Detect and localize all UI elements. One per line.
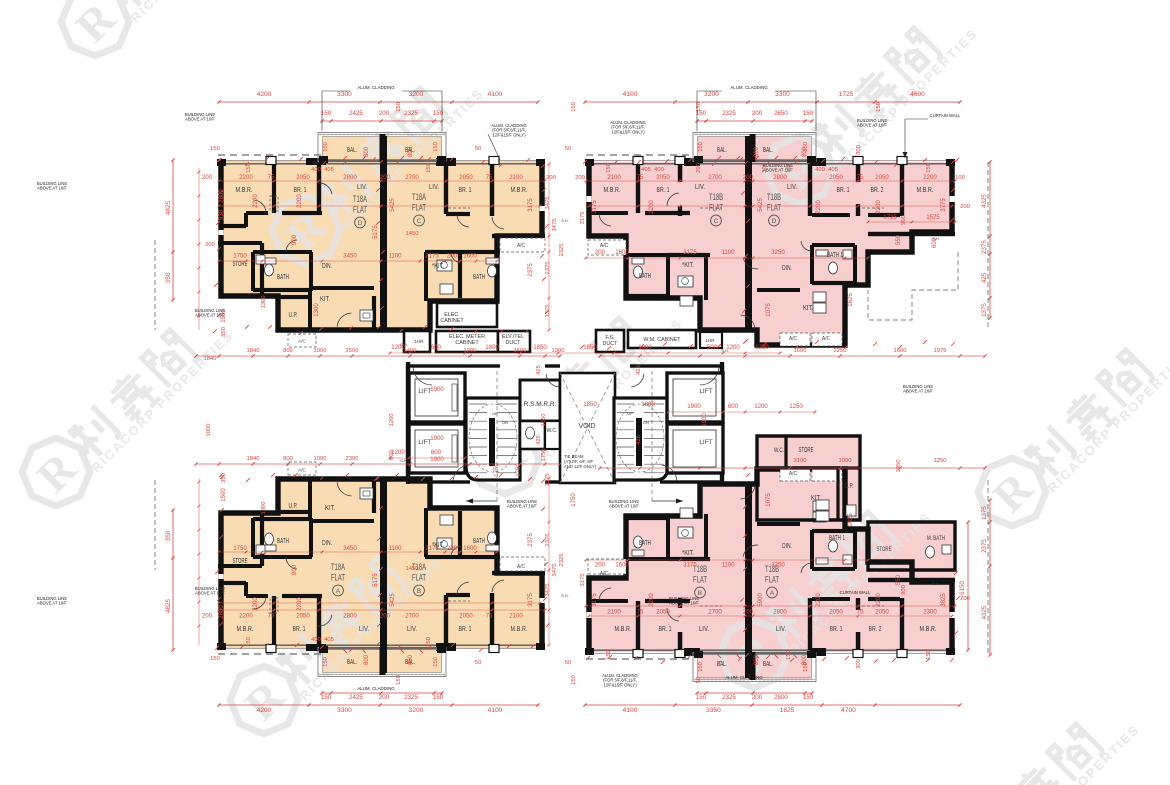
svg-text:150: 150 <box>396 675 402 685</box>
svg-text:1000: 1000 <box>206 424 212 437</box>
svg-text:1500: 1500 <box>221 488 227 502</box>
svg-text:2175: 2175 <box>425 253 439 260</box>
svg-text:800: 800 <box>364 146 370 157</box>
svg-text:150: 150 <box>786 650 792 660</box>
svg-text:5425: 5425 <box>390 593 396 607</box>
svg-text:1100: 1100 <box>721 562 735 569</box>
svg-text:1450: 1450 <box>406 566 419 572</box>
svg-text:1200: 1200 <box>726 344 740 351</box>
svg-text:BATH: BATH <box>639 540 651 547</box>
svg-text:1600: 1600 <box>615 562 629 569</box>
svg-text:BATH 1: BATH 1 <box>829 535 845 542</box>
svg-text:1840: 1840 <box>247 456 260 462</box>
svg-text:600: 600 <box>431 344 442 351</box>
svg-text:50: 50 <box>475 146 481 152</box>
svg-text:550: 550 <box>896 234 902 245</box>
svg-text:1100: 1100 <box>721 249 735 256</box>
svg-text:FLAT: FLAT <box>709 203 723 213</box>
svg-text:1075: 1075 <box>766 303 772 317</box>
svg-text:2200: 2200 <box>239 174 253 181</box>
svg-text:2800: 2800 <box>773 174 787 181</box>
svg-text:1600: 1600 <box>615 249 629 256</box>
svg-text:2100: 2100 <box>509 174 523 181</box>
svg-text:3175: 3175 <box>683 562 697 569</box>
svg-text:150: 150 <box>323 142 329 152</box>
svg-text:600: 600 <box>389 450 395 460</box>
svg-text:3250: 3250 <box>771 562 785 569</box>
svg-text:STORE: STORE <box>233 558 248 565</box>
svg-text:400: 400 <box>311 167 321 173</box>
svg-text:T18A: T18A <box>412 192 427 202</box>
svg-text:200: 200 <box>202 613 213 620</box>
svg-text:A/C: A/C <box>822 336 831 342</box>
svg-text:FLAT: FLAT <box>767 203 781 213</box>
svg-text:ABOVE AT 16/F: ABOVE AT 16/F <box>507 504 537 509</box>
svg-text:2325: 2325 <box>559 244 565 257</box>
svg-text:150: 150 <box>926 163 932 173</box>
svg-text:4200: 4200 <box>257 91 272 98</box>
svg-text:800: 800 <box>283 456 293 462</box>
svg-text:BAL.: BAL. <box>717 661 727 668</box>
svg-text:4825: 4825 <box>165 200 172 215</box>
svg-text:1840: 1840 <box>204 356 217 362</box>
svg-text:LIV.: LIV. <box>359 624 369 633</box>
svg-text:150: 150 <box>803 662 809 672</box>
svg-text:1250: 1250 <box>789 403 803 410</box>
svg-text:1250: 1250 <box>934 458 947 464</box>
svg-text:BR. 1: BR. 1 <box>830 626 843 633</box>
svg-text:1900: 1900 <box>552 348 565 354</box>
svg-text:2375: 2375 <box>528 263 534 277</box>
svg-text:12/F&15/F ONLY): 12/F&15/F ONLY) <box>492 132 526 137</box>
svg-text:5175: 5175 <box>373 225 379 239</box>
svg-text:2325: 2325 <box>722 694 736 701</box>
svg-text:BR. 2: BR. 2 <box>869 626 882 633</box>
svg-text:75: 75 <box>637 609 644 616</box>
svg-text:405: 405 <box>641 167 651 173</box>
svg-text:DIN.: DIN. <box>322 538 332 547</box>
svg-text:LIV.: LIV. <box>699 624 709 633</box>
svg-text:1300: 1300 <box>261 296 267 309</box>
svg-text:150: 150 <box>803 142 809 152</box>
svg-text:5175: 5175 <box>373 573 379 587</box>
svg-text:930: 930 <box>219 209 225 220</box>
svg-text:400: 400 <box>815 167 825 173</box>
svg-text:3825: 3825 <box>941 593 947 607</box>
svg-text:3200: 3200 <box>409 91 424 98</box>
svg-text:U.P.: U.P. <box>289 312 298 319</box>
svg-text:A/C: A/C <box>517 564 526 570</box>
svg-text:150: 150 <box>396 102 402 112</box>
svg-text:3475: 3475 <box>552 564 558 577</box>
svg-text:A/C: A/C <box>298 339 306 344</box>
svg-text:2800: 2800 <box>773 609 787 616</box>
svg-text:200: 200 <box>595 249 606 256</box>
svg-text:1850: 1850 <box>583 401 597 408</box>
svg-text:2375: 2375 <box>528 533 534 547</box>
svg-text:150: 150 <box>786 163 792 173</box>
svg-text:200: 200 <box>379 694 390 701</box>
svg-text:150: 150 <box>210 656 220 662</box>
svg-text:1900: 1900 <box>701 413 708 427</box>
svg-text:200: 200 <box>202 174 213 181</box>
svg-text:1840: 1840 <box>247 348 260 354</box>
svg-text:150: 150 <box>696 102 702 112</box>
svg-text:50: 50 <box>565 146 571 152</box>
svg-text:200: 200 <box>380 613 391 620</box>
svg-text:ALUM. CLADDING: ALUM. CLADDING <box>357 85 395 90</box>
svg-text:200: 200 <box>447 545 458 552</box>
svg-text:M.B.R.: M.B.R. <box>237 626 254 633</box>
svg-text:DN: DN <box>643 421 649 425</box>
svg-text:3475: 3475 <box>552 219 558 232</box>
svg-text:2325: 2325 <box>404 110 418 117</box>
svg-text:ABOVE AT 16/F: ABOVE AT 16/F <box>903 389 933 394</box>
svg-text:1400: 1400 <box>404 348 417 354</box>
svg-text:50: 50 <box>475 660 481 666</box>
svg-text:4100: 4100 <box>488 707 503 714</box>
svg-text:2200: 2200 <box>649 200 655 214</box>
svg-text:150: 150 <box>323 657 329 667</box>
svg-text:3175: 3175 <box>592 200 598 214</box>
svg-text:150: 150 <box>210 146 220 152</box>
svg-text:150: 150 <box>698 142 704 152</box>
svg-text:BR. 1: BR. 1 <box>459 626 472 633</box>
svg-text:FLAT: FLAT <box>693 575 707 585</box>
svg-text:150: 150 <box>606 163 612 173</box>
svg-text:200: 200 <box>743 609 754 616</box>
svg-text:BATH: BATH <box>277 274 289 281</box>
svg-text:75: 75 <box>486 613 493 620</box>
svg-text:600: 600 <box>932 237 938 248</box>
svg-text:1800: 1800 <box>641 401 655 408</box>
svg-text:4200: 4200 <box>257 707 272 714</box>
svg-text:405: 405 <box>828 167 838 173</box>
svg-text:2100: 2100 <box>509 613 523 620</box>
svg-text:150: 150 <box>926 650 932 660</box>
svg-text:2200: 2200 <box>816 593 822 607</box>
svg-text:1600: 1600 <box>894 348 907 354</box>
svg-text:1300: 1300 <box>261 502 267 515</box>
svg-text:2325: 2325 <box>404 694 418 701</box>
svg-text:BAL.: BAL. <box>347 147 357 154</box>
svg-text:1750: 1750 <box>233 253 247 260</box>
svg-text:STORE: STORE <box>877 546 892 553</box>
svg-text:W.M. CABINET: W.M. CABINET <box>643 337 681 343</box>
svg-text:150: 150 <box>426 637 432 647</box>
svg-text:3300: 3300 <box>775 91 790 98</box>
svg-text:200: 200 <box>696 163 702 173</box>
svg-text:4325: 4325 <box>981 605 988 619</box>
svg-text:3200: 3200 <box>409 707 424 714</box>
svg-text:5425: 5425 <box>758 198 764 212</box>
svg-text:U.P.: U.P. <box>845 483 854 490</box>
svg-text:2500: 2500 <box>346 348 359 354</box>
svg-text:ALUM. CLADDING: ALUM. CLADDING <box>730 85 768 90</box>
svg-text:CURTAIN WALL: CURTAIN WALL <box>840 590 871 595</box>
svg-text:M.B.R.: M.B.R. <box>511 187 528 194</box>
svg-text:ABOVE AT 16/F: ABOVE AT 16/F <box>37 601 67 606</box>
svg-text:2200: 2200 <box>876 200 882 214</box>
svg-text:3100: 3100 <box>794 458 807 464</box>
svg-text:405: 405 <box>324 167 334 173</box>
svg-text:W.C.: W.C. <box>774 447 784 454</box>
svg-text:W.C.: W.C. <box>547 428 558 434</box>
svg-text:1750: 1750 <box>516 463 522 477</box>
svg-text:ABOVE AT 16/F: ABOVE AT 16/F <box>185 117 215 122</box>
svg-text:S.H.: S.H. <box>400 459 407 463</box>
svg-text:M.B.R.: M.B.R. <box>511 626 528 633</box>
svg-text:200: 200 <box>447 253 458 260</box>
svg-text:AND 12/F ONLY): AND 12/F ONLY) <box>564 464 597 469</box>
svg-text:1575: 1575 <box>926 214 940 221</box>
svg-text:KIT.: KIT. <box>320 296 330 303</box>
svg-text:1375: 1375 <box>545 474 551 487</box>
svg-text:3475: 3475 <box>545 197 551 210</box>
svg-text:2375: 2375 <box>981 240 988 254</box>
svg-text:BR. 1: BR. 1 <box>837 187 850 194</box>
svg-text:M.B.R.: M.B.R. <box>917 187 934 194</box>
svg-text:1725: 1725 <box>839 91 854 98</box>
svg-text:150: 150 <box>571 675 577 685</box>
svg-text:A: A <box>336 588 341 595</box>
svg-text:DN: DN <box>502 421 508 425</box>
svg-text:300: 300 <box>856 145 862 155</box>
svg-text:2100: 2100 <box>607 609 621 616</box>
svg-text:800: 800 <box>408 146 414 157</box>
svg-text:BAL.: BAL. <box>717 147 727 154</box>
svg-text:2375: 2375 <box>545 534 551 547</box>
svg-text:LIFT: LIFT <box>699 439 712 446</box>
svg-text:C: C <box>417 218 422 225</box>
svg-text:75: 75 <box>857 174 864 181</box>
svg-text:150: 150 <box>426 163 432 173</box>
svg-text:1HR: 1HR <box>705 338 715 343</box>
svg-text:BATH: BATH <box>277 538 289 545</box>
svg-text:ABOVE AT 16/F: ABOVE AT 16/F <box>609 504 639 509</box>
svg-text:4600: 4600 <box>910 91 925 98</box>
svg-text:1HR: 1HR <box>414 339 424 344</box>
svg-text:T18B: T18B <box>767 192 781 202</box>
svg-text:1200: 1200 <box>464 348 477 354</box>
svg-text:S.H.: S.H. <box>561 594 568 598</box>
svg-text:4100: 4100 <box>623 707 638 714</box>
svg-text:300: 300 <box>762 163 768 173</box>
svg-text:LIFT: LIFT <box>699 388 712 395</box>
svg-text:A/C: A/C <box>517 243 526 249</box>
svg-text:900: 900 <box>292 234 298 245</box>
svg-text:1600: 1600 <box>794 348 807 354</box>
svg-text:T18A: T18A <box>331 562 346 572</box>
svg-text:1850: 1850 <box>583 344 597 351</box>
svg-text:1750: 1750 <box>571 493 577 507</box>
svg-text:5900: 5900 <box>758 593 764 607</box>
svg-text:4100: 4100 <box>488 91 503 98</box>
svg-text:2175: 2175 <box>425 545 439 552</box>
svg-text:200: 200 <box>743 174 754 181</box>
svg-text:ABOVE AT 16/F: ABOVE AT 16/F <box>669 601 699 606</box>
svg-text:600: 600 <box>728 403 739 410</box>
svg-text:STORE: STORE <box>799 447 814 454</box>
svg-text:200: 200 <box>575 175 586 181</box>
svg-text:2800: 2800 <box>219 605 225 619</box>
svg-text:3475: 3475 <box>545 584 551 597</box>
svg-text:3300: 3300 <box>337 707 352 714</box>
svg-text:DIN.: DIN. <box>782 541 792 550</box>
svg-text:425: 425 <box>536 435 542 445</box>
svg-text:2800: 2800 <box>774 694 788 701</box>
svg-text:C: C <box>714 218 719 225</box>
svg-text:ALUM. CLADDING: ALUM. CLADDING <box>725 675 763 680</box>
svg-text:1100: 1100 <box>388 253 402 260</box>
svg-text:FLAT: FLAT <box>765 575 779 585</box>
svg-text:S.H.: S.H. <box>932 582 939 586</box>
svg-text:FLAT: FLAT <box>412 203 426 213</box>
svg-text:FLAT: FLAT <box>331 573 345 583</box>
svg-text:150: 150 <box>876 102 882 112</box>
svg-text:425: 425 <box>636 435 642 445</box>
svg-text:1500: 1500 <box>221 309 227 323</box>
svg-text:200: 200 <box>752 694 763 701</box>
svg-text:5425: 5425 <box>390 198 396 212</box>
svg-text:3300: 3300 <box>337 91 352 98</box>
svg-text:B: B <box>417 588 422 595</box>
svg-text:800: 800 <box>283 348 293 354</box>
svg-text:*KIT.: *KIT. <box>432 263 444 270</box>
svg-text:2700: 2700 <box>405 613 419 620</box>
svg-text:800: 800 <box>364 654 370 665</box>
svg-text:2300: 2300 <box>346 456 359 462</box>
svg-text:3175: 3175 <box>683 249 697 256</box>
svg-text:1750: 1750 <box>494 463 500 477</box>
svg-text:200: 200 <box>960 596 970 602</box>
svg-text:200: 200 <box>380 174 391 181</box>
svg-text:2200: 2200 <box>649 593 655 607</box>
svg-text:DIN.: DIN. <box>782 263 792 272</box>
svg-text:2325: 2325 <box>559 554 565 567</box>
svg-text:KIT.: KIT. <box>325 505 335 512</box>
svg-text:150: 150 <box>696 694 707 701</box>
svg-text:1200: 1200 <box>389 414 395 427</box>
svg-text:2050: 2050 <box>829 174 843 181</box>
svg-text:2325: 2325 <box>722 110 736 117</box>
svg-text:150: 150 <box>606 650 612 660</box>
svg-text:2650: 2650 <box>774 110 788 117</box>
svg-text:150: 150 <box>571 102 577 112</box>
svg-text:VOID: VOID <box>578 423 595 430</box>
svg-text:3250: 3250 <box>771 249 785 256</box>
svg-text:LIV.: LIV. <box>357 182 367 191</box>
svg-text:2700: 2700 <box>708 174 722 181</box>
svg-text:150: 150 <box>246 163 252 173</box>
svg-text:3175: 3175 <box>580 574 586 587</box>
svg-text:BATH: BATH <box>639 273 651 280</box>
svg-text:1600: 1600 <box>463 253 477 260</box>
svg-text:200: 200 <box>546 175 557 181</box>
svg-text:400: 400 <box>654 167 664 173</box>
svg-text:75: 75 <box>857 609 864 616</box>
svg-text:1850: 1850 <box>541 414 547 427</box>
svg-text:3175: 3175 <box>580 212 586 225</box>
svg-text:BAL.: BAL. <box>763 147 773 154</box>
svg-text:75: 75 <box>268 174 275 181</box>
svg-text:2050: 2050 <box>875 609 889 616</box>
svg-text:LIV.: LIV. <box>776 624 786 633</box>
svg-text:T18B: T18B <box>709 192 723 202</box>
svg-text:3350: 3350 <box>706 707 721 714</box>
svg-text:ABOVE AT 16/F: ABOVE AT 16/F <box>195 591 225 596</box>
svg-text:405: 405 <box>324 637 334 643</box>
svg-text:M.B.R.: M.B.R. <box>920 626 937 633</box>
svg-text:425: 425 <box>636 365 642 375</box>
svg-text:S.H.: S.H. <box>561 219 568 223</box>
svg-text:3450: 3450 <box>343 253 357 260</box>
svg-text:1600: 1600 <box>514 348 527 354</box>
svg-text:1975: 1975 <box>934 348 947 354</box>
svg-text:2425: 2425 <box>349 694 363 701</box>
svg-text:75: 75 <box>486 174 493 181</box>
svg-text:2200: 2200 <box>816 200 822 214</box>
svg-text:3450: 3450 <box>343 545 357 552</box>
svg-text:A/C: A/C <box>600 571 609 577</box>
svg-text:200: 200 <box>379 110 390 117</box>
svg-text:2250: 2250 <box>834 348 847 354</box>
svg-text:425: 425 <box>536 365 542 375</box>
svg-text:800: 800 <box>408 654 414 665</box>
svg-text:1900: 1900 <box>430 456 444 463</box>
svg-text:1850: 1850 <box>533 344 547 351</box>
svg-text:BR. 1: BR. 1 <box>657 187 670 194</box>
svg-text:KIT.: KIT. <box>811 495 821 502</box>
svg-text:2700: 2700 <box>708 609 722 616</box>
svg-text:DUCT: DUCT <box>506 340 522 346</box>
svg-text:A/C: A/C <box>789 336 798 342</box>
svg-text:900: 900 <box>901 215 907 225</box>
svg-text:1075: 1075 <box>766 493 772 507</box>
svg-text:M.B.R.: M.B.R. <box>236 187 253 194</box>
svg-text:BR. 1: BR. 1 <box>294 187 307 194</box>
svg-text:1625: 1625 <box>848 293 854 307</box>
svg-text:1450: 1450 <box>406 231 419 237</box>
svg-text:3175: 3175 <box>592 593 598 607</box>
svg-text:1950: 1950 <box>896 460 902 473</box>
svg-text:150: 150 <box>433 657 439 667</box>
svg-text:425: 425 <box>981 272 988 283</box>
svg-text:350: 350 <box>221 473 227 483</box>
svg-text:2200: 2200 <box>239 613 253 620</box>
svg-text:1375: 1375 <box>981 303 988 317</box>
svg-text:3175: 3175 <box>528 198 534 212</box>
svg-text:150: 150 <box>321 110 332 117</box>
svg-text:400: 400 <box>311 637 321 643</box>
svg-text:1200: 1200 <box>754 403 768 410</box>
svg-text:2300: 2300 <box>923 609 937 616</box>
svg-text:1000: 1000 <box>839 458 852 464</box>
svg-text:2375: 2375 <box>545 262 551 275</box>
svg-text:4700: 4700 <box>841 707 856 714</box>
svg-text:2050: 2050 <box>459 613 473 620</box>
svg-text:150: 150 <box>803 694 814 701</box>
svg-text:2050: 2050 <box>656 609 670 616</box>
svg-text:150: 150 <box>433 694 444 701</box>
svg-text:2200: 2200 <box>253 597 259 611</box>
svg-text:2375: 2375 <box>981 539 988 553</box>
svg-text:2100: 2100 <box>607 174 621 181</box>
svg-text:3175: 3175 <box>528 593 534 607</box>
svg-text:1625: 1625 <box>848 513 854 527</box>
svg-text:200: 200 <box>960 204 970 210</box>
svg-text:75: 75 <box>268 613 275 620</box>
